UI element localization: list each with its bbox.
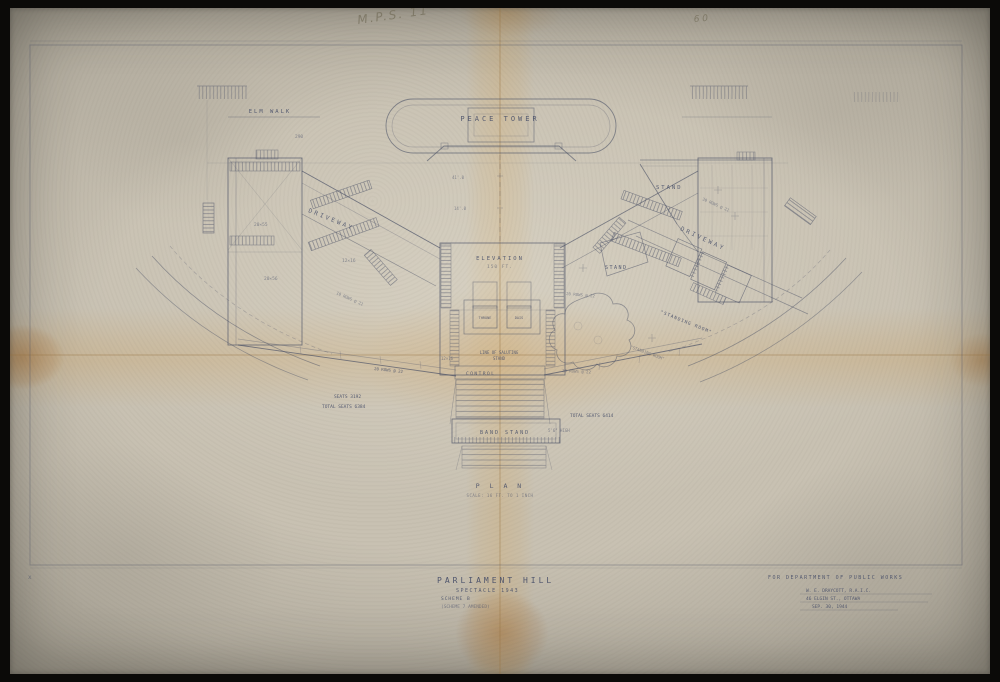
graphite-scribble: M.P.S. 11 [356, 8, 429, 27]
elevation-label: ELEVATION [476, 256, 524, 262]
architect-line: W. E. DRAYCOTT, R.A.I.C. [806, 588, 871, 594]
saluting-line-2: STAND [493, 356, 506, 361]
dim-12x16-center: 12×16 [441, 356, 454, 361]
dim-20x56: 20×56 [264, 276, 278, 282]
aged-paper: M.P.S. 11 6 0 PEACE TOWER ELM WALK 290 4… [10, 8, 990, 674]
sheet-subtitle: SPECTACLE 1943 [456, 588, 519, 594]
saluting-line-1: LINE OF SALUTING [480, 350, 519, 355]
plan-scale: SCALE: 16 FT. TO 1 INCH [467, 493, 534, 498]
plan-labels: M.P.S. 11 6 0 PEACE TOWER ELM WALK 290 4… [28, 8, 731, 581]
plan-title: P L A N [476, 482, 524, 490]
date-line: SEP. 30, 1944 [812, 604, 848, 610]
elm-walk-label: ELM WALK [249, 109, 292, 115]
client-line: FOR DEPARTMENT OF PUBLIC WORKS [768, 575, 903, 581]
graphite-scribble-right: 6 0 [693, 14, 708, 25]
curved-roads-right [668, 250, 862, 382]
stand-right-low-label: STAND [605, 265, 628, 271]
total-seats-right: TOTAL SEATS 6414 [570, 413, 614, 419]
standing-room-1: "STANDING ROOM" [659, 309, 713, 335]
control-label: CONTROL [466, 371, 495, 377]
address-line: 46 ELGIN ST., OTTAWA [806, 596, 860, 602]
stand-right-top-label: STAND [656, 185, 683, 191]
plan-drawing: M.P.S. 11 6 0 PEACE TOWER ELM WALK 290 4… [10, 8, 990, 674]
rows-left-lower: 20 ROWS @ 22 [374, 366, 404, 374]
curved-roads-left [136, 246, 332, 380]
driveway-right-label: DRIVEWAY [679, 225, 726, 252]
rows-right-lower: 20 ROWS @ 22 [562, 368, 592, 375]
throne-label: THRONE [479, 316, 492, 320]
driveway-left-label: DRIVEWAY [307, 207, 355, 232]
dais-label: DAIS [515, 316, 523, 320]
left-stand-wing [203, 150, 456, 376]
standing-room-2: "STANDING ROOM" [630, 344, 666, 361]
dim-14: 14'.0 [454, 206, 467, 211]
corner-x-mark: x [28, 574, 32, 581]
band-stand-label: BAND STAND [480, 430, 530, 436]
scheme-note: (SCHEME 7 AMENDED) [441, 604, 490, 610]
elevation-note: 150 FT. [487, 264, 513, 270]
dim-41: 41'.0 [452, 175, 465, 180]
ref-290: 290 [295, 134, 303, 140]
scanned-blueprint-sheet: M.P.S. 11 6 0 PEACE TOWER ELM WALK 290 4… [0, 0, 1000, 682]
dim-20x55: 20×55 [254, 222, 268, 228]
band-height: 5'6" HIGH [548, 428, 570, 433]
peace-tower-label: PEACE TOWER [460, 115, 539, 123]
sheet-title: PARLIAMENT HILL [437, 576, 554, 585]
band-stand-outline [452, 419, 560, 470]
central-saluting-stand [440, 243, 565, 424]
total-seats-left: TOTAL SEATS 6384 [322, 404, 366, 410]
title-block: PARLIAMENT HILL SPECTACLE 1943 SCHEME B … [437, 575, 932, 610]
rows-right-top: 30 ROWS @ 22 [702, 196, 731, 213]
dim-12x16-left: 12×16 [342, 258, 356, 264]
rows-right-upper: 20 ROWS @ 22 [566, 291, 596, 299]
scheme-label: SCHEME B [441, 596, 471, 602]
rows-left-upper: 10 ROWS @ 22 [336, 290, 365, 307]
seats-left: SEATS 3192 [334, 394, 361, 400]
